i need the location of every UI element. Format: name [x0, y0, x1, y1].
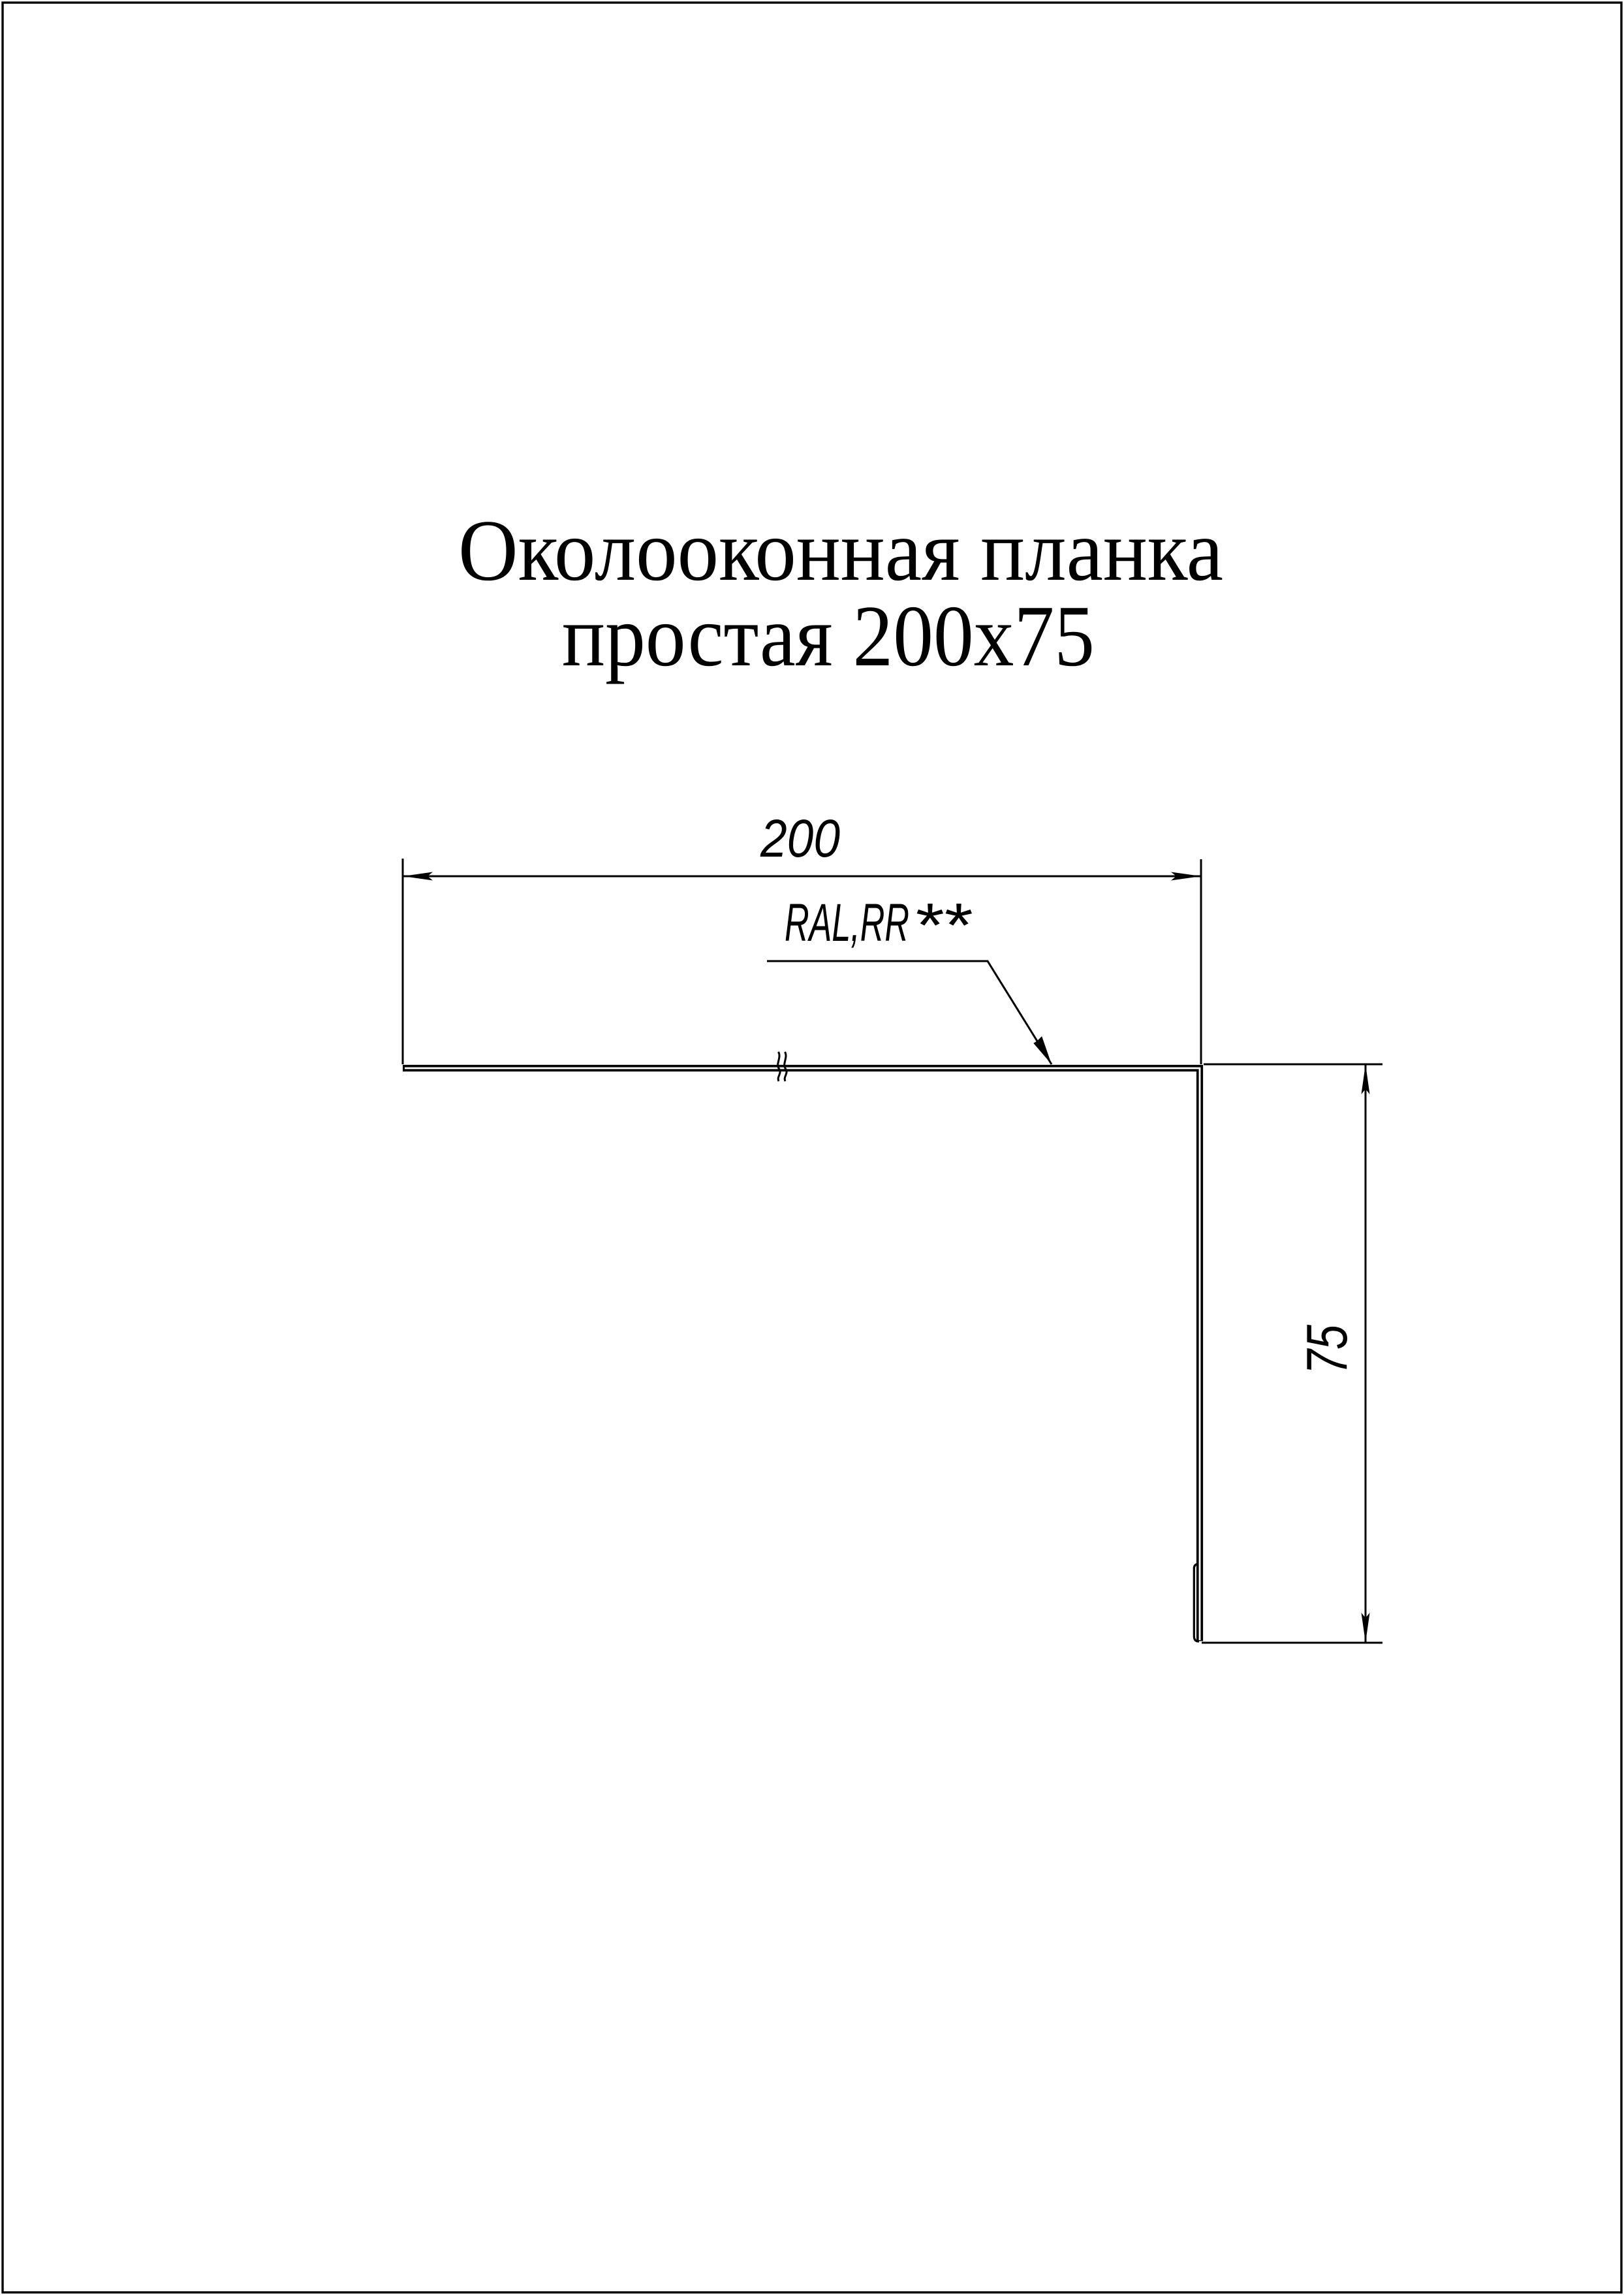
svg-text:простая 200х75: простая 200х75	[562, 588, 1095, 684]
svg-text:200: 200	[760, 809, 840, 868]
svg-text:**: **	[913, 891, 972, 960]
svg-text:RAL,RR: RAL,RR	[785, 893, 909, 953]
svg-text:Околооконная планка: Околооконная планка	[458, 502, 1223, 599]
svg-text:75: 75	[1294, 1324, 1359, 1374]
